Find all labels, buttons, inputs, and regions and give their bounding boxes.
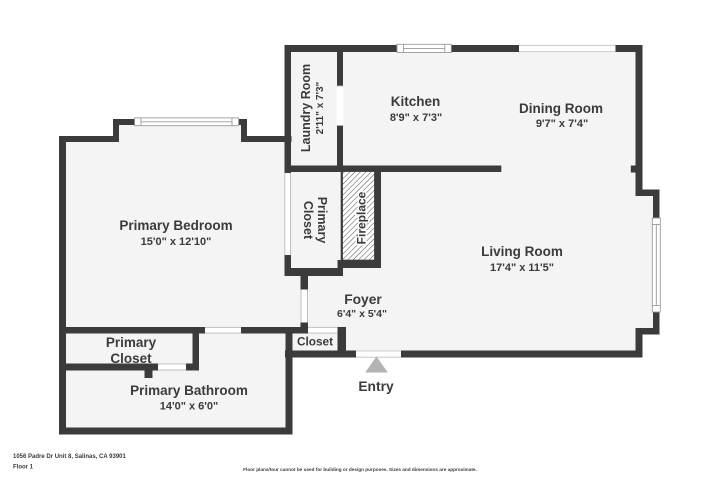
svg-text:Dining Room: Dining Room bbox=[519, 101, 603, 116]
svg-text:Primary: Primary bbox=[106, 335, 157, 350]
svg-text:6'4" x 5'4": 6'4" x 5'4" bbox=[337, 308, 387, 320]
svg-text:Closet: Closet bbox=[301, 201, 315, 240]
svg-text:Floor plans/tour cannot be use: Floor plans/tour cannot be used for buil… bbox=[243, 467, 477, 472]
svg-text:Closet: Closet bbox=[110, 351, 152, 366]
svg-text:Living Room: Living Room bbox=[481, 244, 563, 259]
svg-text:8'9" x 7'3": 8'9" x 7'3" bbox=[390, 112, 442, 124]
svg-text:15'0" x 12'10": 15'0" x 12'10" bbox=[141, 236, 212, 248]
svg-text:Laundry Room: Laundry Room bbox=[299, 64, 313, 152]
svg-text:9'7" x 7'4": 9'7" x 7'4" bbox=[536, 118, 588, 130]
svg-text:Entry: Entry bbox=[358, 379, 394, 394]
svg-text:Primary Bedroom: Primary Bedroom bbox=[119, 218, 232, 233]
svg-text:1056 Padre Dr Unit 8, Salinas,: 1056 Padre Dr Unit 8, Salinas, CA 93901 bbox=[13, 454, 126, 460]
svg-text:2'11" x 7'3": 2'11" x 7'3" bbox=[315, 81, 326, 134]
svg-text:Fireplace: Fireplace bbox=[355, 191, 369, 244]
svg-text:Kitchen: Kitchen bbox=[391, 94, 441, 109]
svg-text:Primary: Primary bbox=[315, 197, 329, 244]
svg-text:Floor 1: Floor 1 bbox=[13, 465, 34, 471]
svg-text:Foyer: Foyer bbox=[344, 292, 382, 307]
svg-text:Primary Bathroom: Primary Bathroom bbox=[130, 383, 248, 398]
svg-text:Closet: Closet bbox=[297, 335, 333, 349]
svg-text:14'0" x 6'0": 14'0" x 6'0" bbox=[160, 401, 218, 413]
svg-text:17'4" x 11'5": 17'4" x 11'5" bbox=[490, 262, 554, 274]
